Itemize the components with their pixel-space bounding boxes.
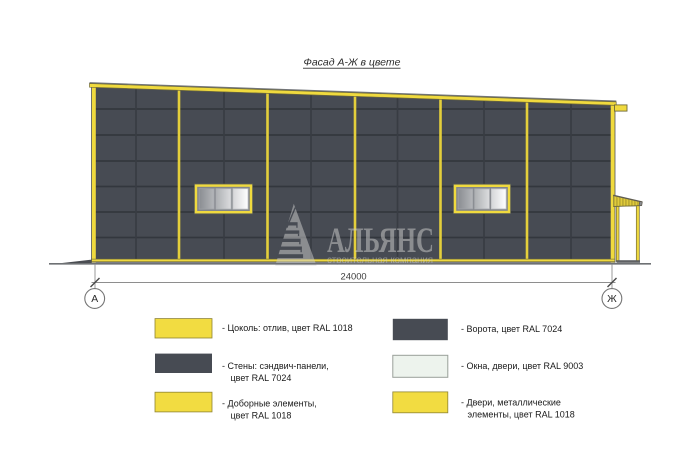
svg-text:элементы, цвет RAL 1018: элементы, цвет RAL 1018: [468, 410, 575, 420]
svg-text:цвет RAL 1018: цвет RAL 1018: [231, 411, 292, 421]
svg-text:- Цоколь: отлив, цвет RAL 1018: - Цоколь: отлив, цвет RAL 1018: [222, 323, 353, 333]
svg-text:цвет RAL 7024: цвет RAL 7024: [231, 373, 292, 383]
svg-text:Фасад А-Ж в цвете: Фасад А-Ж в цвете: [303, 56, 400, 68]
svg-text:- Окна, двери, цвет RAL 9003: - Окна, двери, цвет RAL 9003: [461, 361, 583, 371]
svg-text:- Доборные элементы,: - Доборные элементы,: [222, 399, 317, 409]
svg-text:А: А: [91, 294, 98, 305]
svg-text:- Стены: сэндвич-панели,: - Стены: сэндвич-панели,: [222, 361, 329, 371]
svg-text:- Двери, металлические: - Двери, металлические: [461, 398, 561, 408]
svg-text:Ж: Ж: [607, 294, 617, 305]
svg-text:- Ворота, цвет RAL 7024: - Ворота, цвет RAL 7024: [461, 324, 562, 334]
svg-text:24000: 24000: [341, 270, 367, 281]
